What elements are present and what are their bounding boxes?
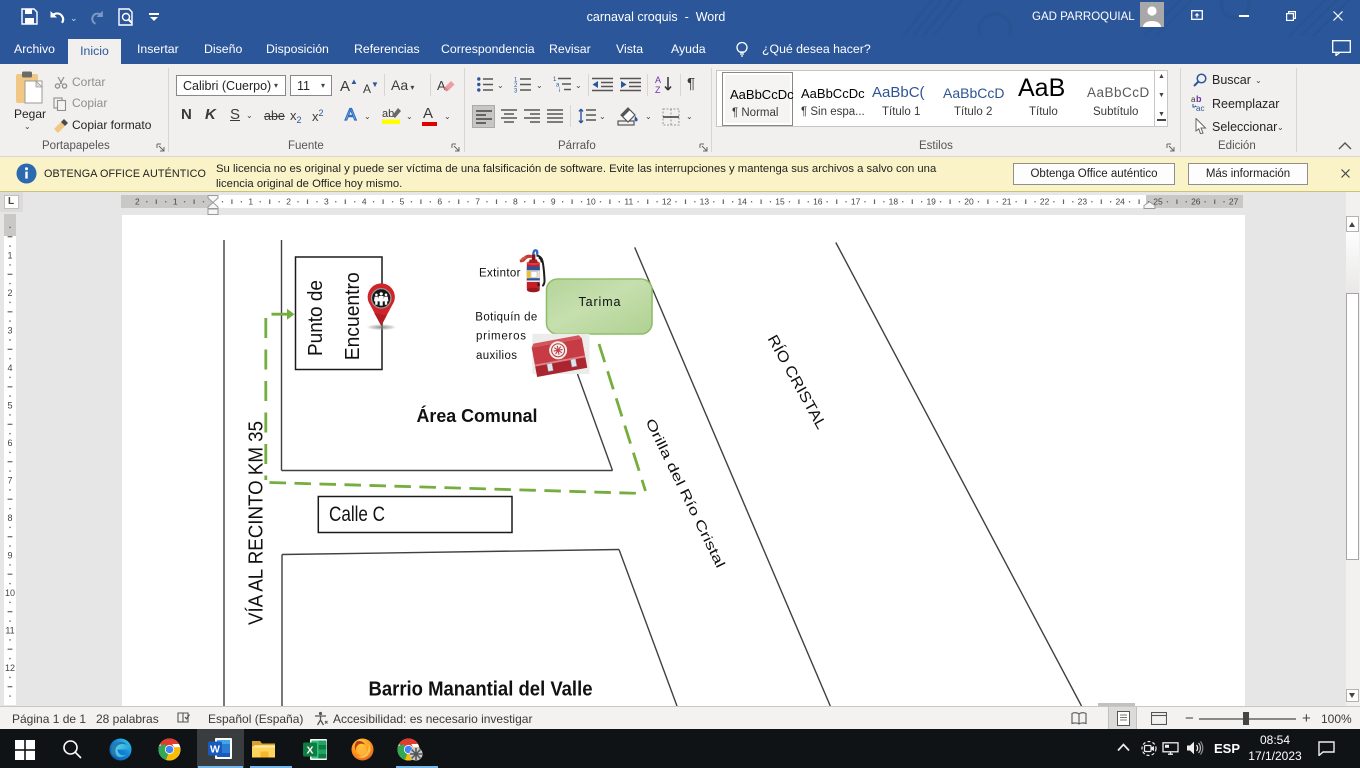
svg-text:3: 3 bbox=[7, 325, 12, 335]
svg-text:3: 3 bbox=[324, 196, 329, 206]
svg-text:19: 19 bbox=[926, 196, 936, 206]
svg-text:10: 10 bbox=[5, 588, 15, 598]
svg-text:23: 23 bbox=[1078, 196, 1088, 206]
svg-text:9: 9 bbox=[7, 550, 12, 560]
svg-text:1: 1 bbox=[173, 196, 178, 206]
svg-text:9: 9 bbox=[551, 196, 556, 206]
svg-text:VÍA AL RECINTO KM 35: VÍA AL RECINTO KM 35 bbox=[244, 421, 267, 625]
svg-text:22: 22 bbox=[1040, 196, 1050, 206]
svg-text:5: 5 bbox=[400, 196, 405, 206]
svg-text:ac: ac bbox=[1196, 104, 1204, 112]
svg-text:W: W bbox=[210, 744, 220, 756]
svg-text:24: 24 bbox=[1115, 196, 1125, 206]
svg-text:A: A bbox=[437, 78, 446, 93]
svg-text:11: 11 bbox=[624, 196, 633, 206]
svg-text:ab: ab bbox=[382, 108, 394, 120]
svg-text:Extintor: Extintor bbox=[479, 268, 521, 280]
svg-text:1: 1 bbox=[248, 196, 253, 206]
svg-text:i: i bbox=[559, 88, 560, 93]
svg-text:11: 11 bbox=[5, 625, 14, 635]
svg-text:Tarima: Tarima bbox=[578, 295, 620, 309]
svg-text:Encuentro: Encuentro bbox=[340, 272, 363, 360]
svg-text:A: A bbox=[655, 75, 661, 85]
svg-text:1: 1 bbox=[7, 250, 12, 260]
svg-text:14: 14 bbox=[737, 196, 747, 206]
svg-text:12: 12 bbox=[5, 663, 15, 673]
svg-text:2: 2 bbox=[135, 196, 140, 206]
svg-text:10: 10 bbox=[586, 196, 596, 206]
svg-text:Barrio Manantial del Valle: Barrio Manantial del Valle bbox=[368, 678, 592, 701]
svg-text:Punto de: Punto de bbox=[304, 280, 327, 356]
svg-text:Botiquín de: Botiquín de bbox=[475, 312, 537, 324]
svg-text:primeros: primeros bbox=[476, 331, 526, 343]
svg-text:X: X bbox=[306, 745, 313, 757]
svg-text:15: 15 bbox=[775, 196, 785, 206]
svg-text:Orilla del Río Cristal: Orilla del Río Cristal bbox=[642, 416, 727, 570]
svg-text:8: 8 bbox=[513, 196, 518, 206]
svg-text:7: 7 bbox=[7, 475, 12, 485]
svg-text:7: 7 bbox=[475, 196, 480, 206]
svg-text:8: 8 bbox=[7, 513, 12, 523]
svg-text:13: 13 bbox=[700, 196, 710, 206]
svg-text:26: 26 bbox=[1191, 196, 1201, 206]
svg-text:2: 2 bbox=[7, 288, 12, 298]
svg-text:RÍO CRISTAL: RÍO CRISTAL bbox=[763, 332, 829, 432]
svg-text:17: 17 bbox=[851, 196, 861, 206]
svg-text:21: 21 bbox=[1002, 196, 1012, 206]
svg-text:2: 2 bbox=[286, 196, 291, 206]
svg-text:20: 20 bbox=[964, 196, 974, 206]
svg-text:12: 12 bbox=[662, 196, 672, 206]
svg-text:18: 18 bbox=[889, 196, 899, 206]
svg-text:Área Comunal: Área Comunal bbox=[416, 405, 537, 426]
svg-text:6: 6 bbox=[437, 196, 442, 206]
svg-text:4: 4 bbox=[362, 196, 367, 206]
svg-text:3: 3 bbox=[514, 89, 518, 94]
svg-text:6: 6 bbox=[7, 438, 12, 448]
svg-text:b: b bbox=[1196, 95, 1202, 104]
svg-text:4: 4 bbox=[7, 363, 12, 373]
svg-text:16: 16 bbox=[813, 196, 823, 206]
svg-text:5: 5 bbox=[7, 400, 12, 410]
svg-text:27: 27 bbox=[1229, 196, 1239, 206]
svg-text:auxilios: auxilios bbox=[476, 350, 517, 362]
svg-text:Calle C: Calle C bbox=[329, 503, 385, 526]
svg-text:Z: Z bbox=[655, 85, 661, 94]
